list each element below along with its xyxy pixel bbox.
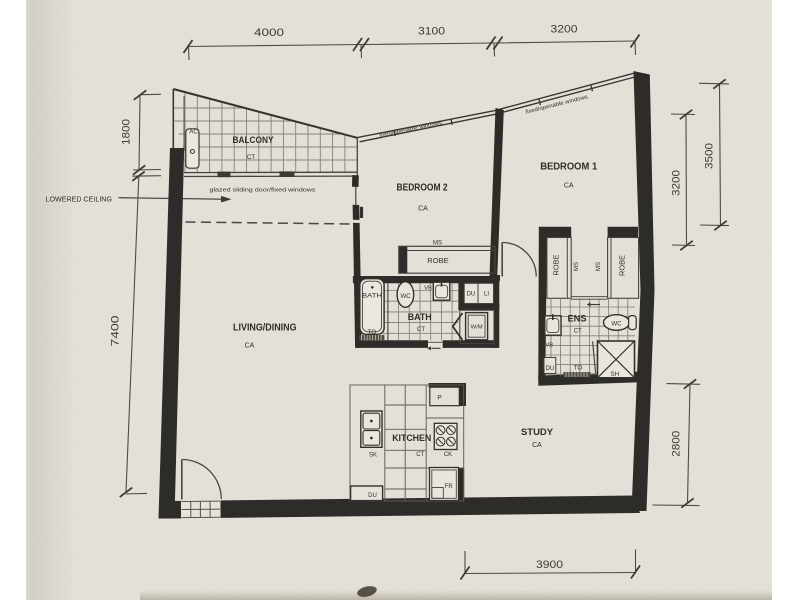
svg-text:glazed sliding door/fixed wind: glazed sliding door/fixed windows	[210, 188, 316, 194]
svg-text:SH: SH	[610, 371, 619, 378]
svg-text:LI: LI	[484, 291, 489, 297]
svg-text:ROBE: ROBE	[619, 255, 626, 276]
svg-text:CK: CK	[444, 452, 452, 458]
svg-text:ROBE: ROBE	[553, 254, 560, 275]
svg-text:3200: 3200	[551, 24, 578, 36]
svg-text:SK: SK	[369, 452, 377, 458]
svg-text:BEDROOM 2: BEDROOM 2	[397, 182, 448, 194]
svg-text:CT: CT	[247, 154, 255, 161]
svg-text:AC: AC	[189, 129, 198, 136]
svg-text:2800: 2800	[671, 431, 683, 457]
svg-text:3900: 3900	[536, 559, 563, 571]
svg-text:W/M: W/M	[471, 325, 483, 331]
svg-text:3100: 3100	[418, 26, 445, 38]
svg-text:4000: 4000	[254, 27, 284, 39]
svg-text:WC: WC	[611, 320, 622, 327]
svg-text:STUDY: STUDY	[521, 427, 553, 437]
svg-text:WC: WC	[400, 293, 411, 300]
svg-text:CA: CA	[418, 206, 428, 213]
svg-text:LOWERED CEILING: LOWERED CEILING	[46, 196, 113, 203]
svg-text:FR: FR	[445, 484, 454, 490]
svg-text:LIVING/DINING: LIVING/DINING	[233, 322, 297, 334]
svg-text:3500: 3500	[704, 143, 716, 169]
svg-text:7400: 7400	[110, 316, 122, 347]
svg-text:BEDROOM 1: BEDROOM 1	[540, 161, 597, 173]
svg-text:KITCHEN: KITCHEN	[392, 433, 431, 443]
svg-text:CA: CA	[532, 442, 542, 449]
svg-text:DU: DU	[467, 291, 476, 297]
svg-text:1800: 1800	[121, 119, 133, 145]
svg-text:BATH: BATH	[362, 292, 382, 299]
svg-text:ENS: ENS	[568, 314, 587, 324]
svg-text:CT: CT	[417, 326, 425, 333]
svg-text:DU: DU	[368, 493, 377, 499]
svg-text:TO: TO	[574, 365, 583, 372]
svg-text:ROBE: ROBE	[427, 256, 449, 265]
svg-text:MS: MS	[574, 262, 580, 271]
svg-text:BALCONY: BALCONY	[233, 135, 274, 145]
svg-text:P: P	[437, 395, 441, 402]
svg-text:3200: 3200	[671, 170, 683, 196]
svg-text:CA: CA	[564, 183, 574, 190]
svg-text:MS: MS	[433, 241, 442, 247]
svg-text:BATH: BATH	[408, 312, 432, 322]
svg-text:VB: VB	[545, 343, 553, 349]
svg-text:DU: DU	[546, 366, 555, 372]
svg-text:VB: VB	[424, 286, 432, 292]
svg-text:CT: CT	[416, 452, 424, 458]
svg-text:CT: CT	[574, 328, 582, 335]
svg-text:CA: CA	[245, 343, 255, 350]
svg-text:MS: MS	[596, 262, 602, 271]
